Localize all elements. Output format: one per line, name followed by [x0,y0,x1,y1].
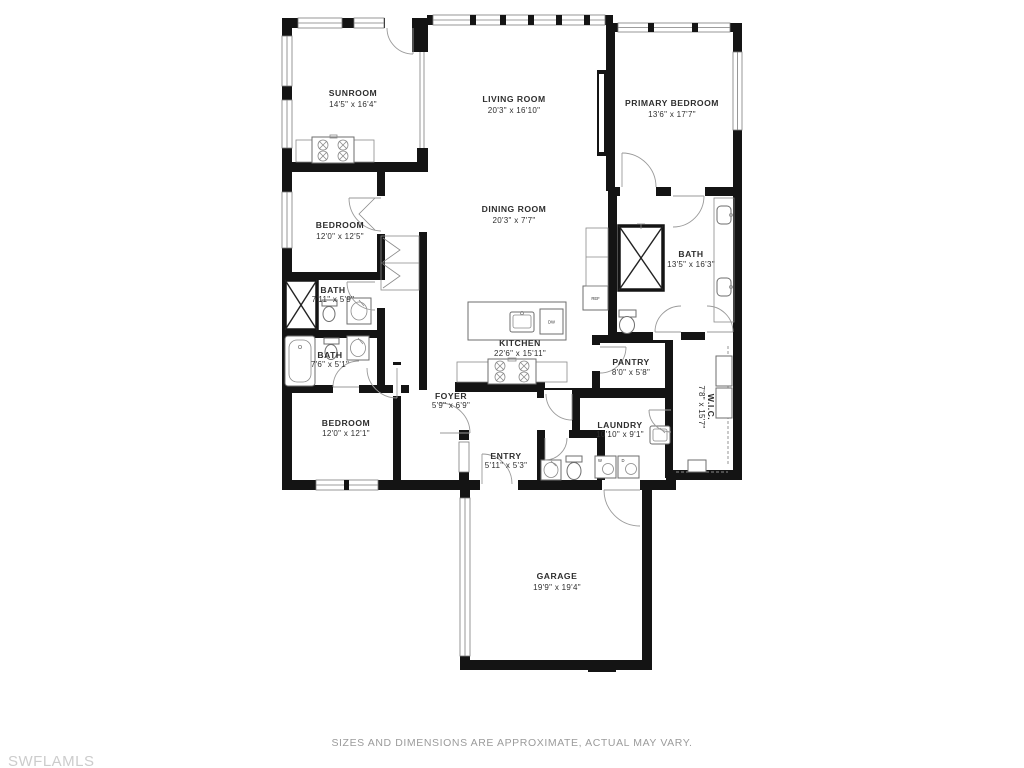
svg-text:12'0" x 12'1": 12'0" x 12'1" [322,429,370,438]
svg-text:DINING ROOM: DINING ROOM [482,204,547,214]
svg-text:13'6" x 17'7": 13'6" x 17'7" [648,110,696,119]
svg-text:12'0" x 12'5": 12'0" x 12'5" [316,232,364,241]
living-room-windows [433,15,605,25]
room-label-living: LIVING ROOM 20'3" x 16'10" [482,94,545,115]
toilet-icon-3 [324,338,339,344]
svg-text:13'5" x 16'3": 13'5" x 16'3" [667,260,715,269]
dryer-label: D [621,458,624,463]
room-label-entry: ENTRY 5'11" x 5'3" [485,451,527,470]
room-label-dining: DINING ROOM 20'3" x 7'7" [482,204,547,225]
garage-door [460,498,470,656]
room-label-bath-primary: BATH 13'5" x 16'3" [667,249,715,269]
toilet-icon-4 [566,456,582,462]
watermark-logo: SWFLAMLS [8,753,95,768]
svg-text:PRIMARY BEDROOM: PRIMARY BEDROOM [625,98,719,108]
svg-text:BATH: BATH [320,285,345,295]
svg-text:PANTRY: PANTRY [612,357,649,367]
svg-text:FOYER: FOYER [435,391,467,401]
svg-text:7'8" x 15'7": 7'8" x 15'7" [697,385,706,428]
svg-text:BEDROOM: BEDROOM [322,418,370,428]
toilet-icon [619,310,636,317]
svg-text:5'11" x 5'3": 5'11" x 5'3" [485,461,527,470]
svg-text:ENTRY: ENTRY [490,451,521,461]
sunroom-windows [282,18,384,148]
svg-text:LAUNDRY: LAUNDRY [597,420,642,430]
svg-text:KITCHEN: KITCHEN [499,338,541,348]
svg-text:8'0" x 5'8": 8'0" x 5'8" [612,368,650,377]
kitchen-range [457,358,567,384]
vanity-sink-icon [717,206,731,224]
dishwasher-label: DW [548,320,555,325]
svg-text:22'6" x 15'11": 22'6" x 15'11" [494,349,546,358]
room-label-kitchen: KITCHEN 22'6" x 15'11" [494,338,546,358]
svg-text:14'5" x 16'4": 14'5" x 16'4" [329,100,377,109]
floor-plan-page: SUNROOM 14'5" x 16'4" LIVING ROOM 20'3" … [0,0,1024,768]
room-label-foyer: FOYER 5'9" x 6'9" [432,391,470,410]
room-label-pantry: PANTRY 8'0" x 5'8" [612,357,650,377]
svg-text:BEDROOM: BEDROOM [316,220,364,230]
room-label-garage: GARAGE 19'9" x 19'4" [533,571,581,592]
room-label-sunroom: SUNROOM 14'5" x 16'4" [329,88,377,109]
room-label-wic: W.I.C. 7'8" x 15'7" [697,385,716,428]
svg-text:10'10" x 9'1": 10'10" x 9'1" [596,430,644,439]
svg-text:7'6" x 5'1": 7'6" x 5'1" [311,360,349,369]
room-label-bath-small-2: BATH 7'6" x 5'1" [311,350,349,369]
disclaimer-text: SIZES AND DIMENSIONS ARE APPROXIMATE, AC… [331,737,692,749]
room-label-laundry: LAUNDRY 10'10" x 9'1" [596,420,644,439]
svg-text:19'9" x 19'4": 19'9" x 19'4" [533,583,581,592]
sunroom-glass-wall [420,52,424,148]
room-label-bedroom-low: BEDROOM 12'0" x 12'1" [322,418,370,438]
svg-text:LIVING ROOM: LIVING ROOM [482,94,545,104]
vanity-sink-icon-2 [717,278,731,296]
svg-text:GARAGE: GARAGE [537,571,578,581]
room-label-primary: PRIMARY BEDROOM 13'6" x 17'7" [625,98,719,119]
svg-text:20'3" x 7'7": 20'3" x 7'7" [492,216,535,225]
sunroom-grill [296,135,374,163]
washer-label: W [598,458,602,463]
entry-sidelite [459,442,469,472]
room-label-bedroom-mid: BEDROOM 12'0" x 12'5" [316,220,364,241]
svg-text:W.I.C.: W.I.C. [706,394,716,420]
svg-text:5'9" x 6'9": 5'9" x 6'9" [432,401,470,410]
svg-text:BATH: BATH [317,350,342,360]
svg-text:BATH: BATH [678,249,703,259]
floor-plan-drawing: SUNROOM 14'5" x 16'4" LIVING ROOM 20'3" … [0,0,1024,768]
svg-text:7'11" x 5'9": 7'11" x 5'9" [312,295,354,304]
svg-text:SUNROOM: SUNROOM [329,88,377,98]
refrigerator-label: REF [591,296,600,301]
svg-text:20'3" x 16'10": 20'3" x 16'10" [488,106,541,115]
